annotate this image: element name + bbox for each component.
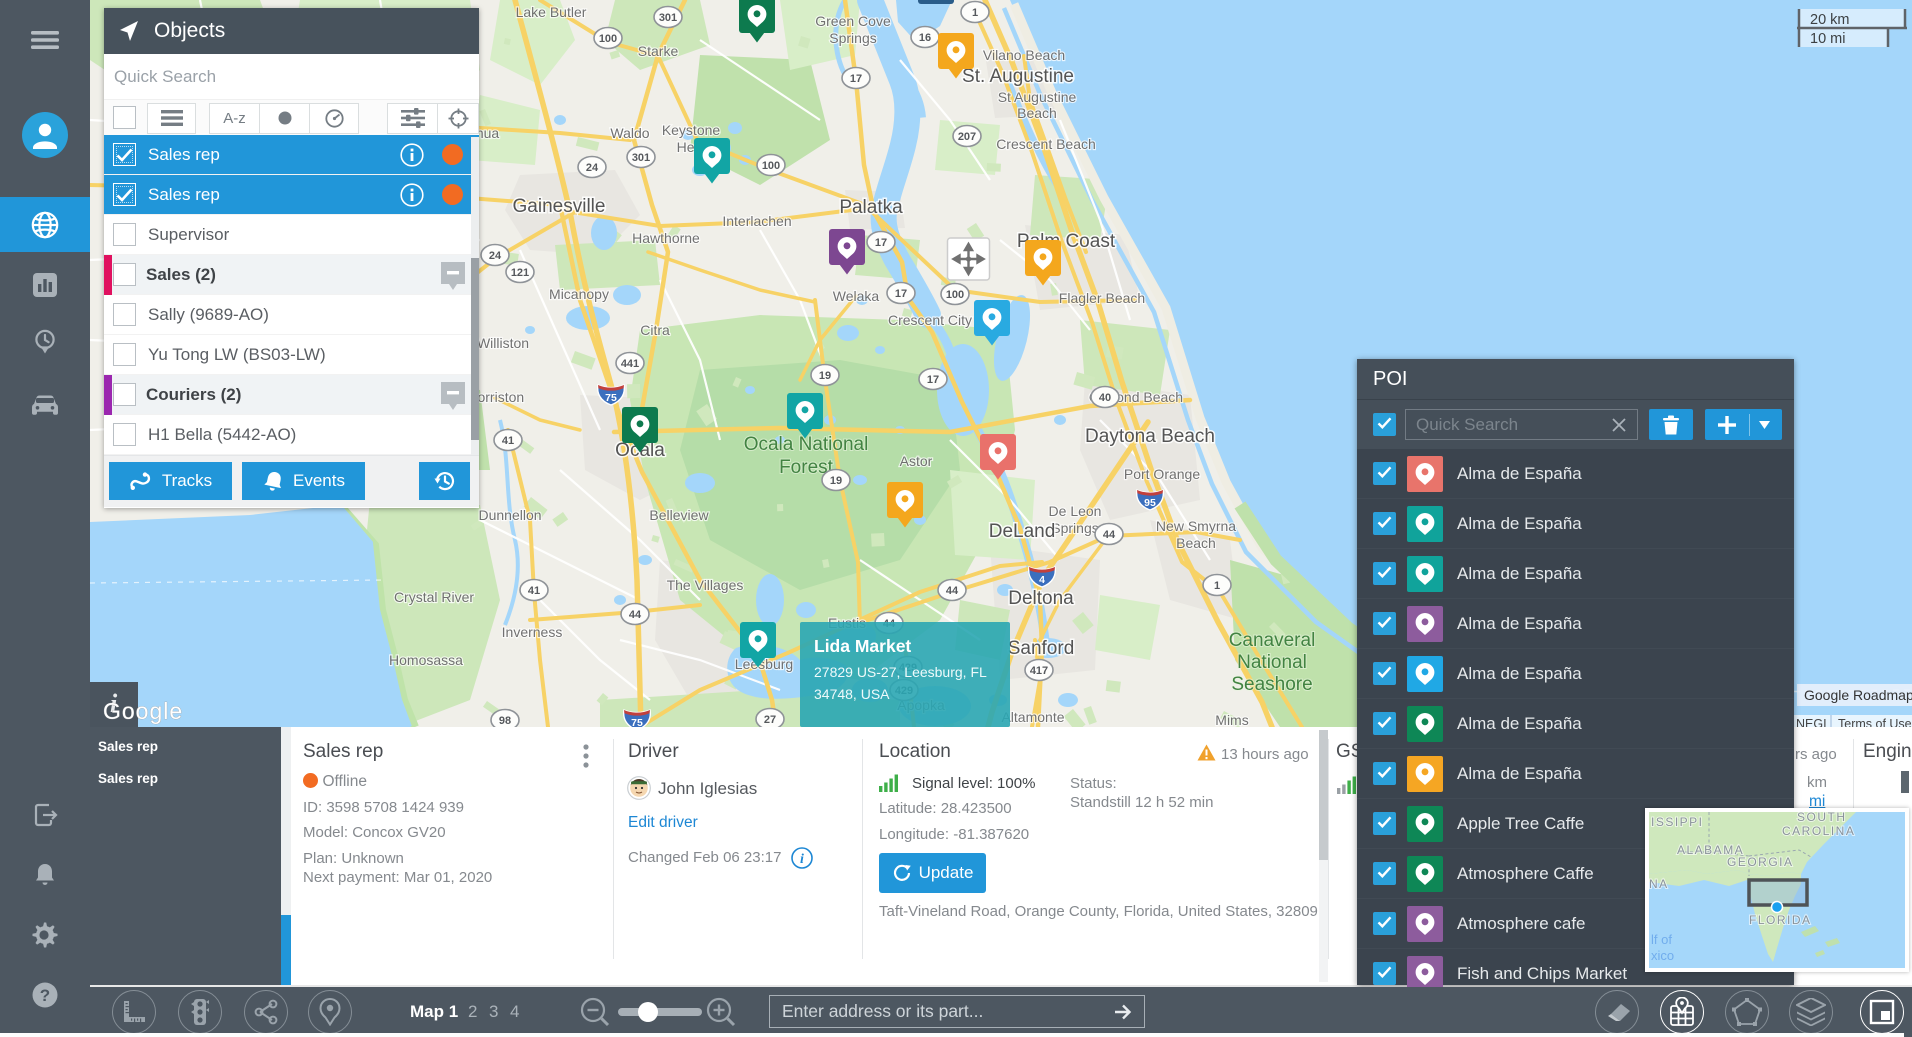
svg-text:Beach: Beach bbox=[1176, 535, 1216, 551]
svg-text:National: National bbox=[1237, 652, 1307, 673]
svg-text:NEGI: NEGI bbox=[1796, 717, 1827, 727]
svg-text:75: 75 bbox=[605, 392, 617, 404]
svg-text:Dunnellon: Dunnellon bbox=[478, 507, 541, 523]
svg-text:Deltona: Deltona bbox=[1008, 588, 1074, 609]
svg-text:DeLand: DeLand bbox=[989, 521, 1056, 542]
svg-text:24: 24 bbox=[586, 162, 599, 174]
svg-text:1: 1 bbox=[972, 7, 978, 19]
svg-text:100: 100 bbox=[599, 33, 617, 45]
svg-text:Crescent Beach: Crescent Beach bbox=[996, 136, 1096, 152]
svg-text:44: 44 bbox=[1103, 529, 1116, 541]
svg-text:Welaka: Welaka bbox=[833, 288, 880, 304]
svg-text:17: 17 bbox=[895, 288, 907, 300]
svg-text:Springs: Springs bbox=[1051, 520, 1098, 536]
svg-text:New Smyrna: New Smyrna bbox=[1156, 518, 1236, 534]
svg-text:27829 US-27, Leesburg, FL: 27829 US-27, Leesburg, FL bbox=[814, 664, 987, 680]
svg-text:Hawthorne: Hawthorne bbox=[632, 230, 700, 246]
svg-text:GEORGIA: GEORGIA bbox=[1727, 855, 1794, 869]
svg-text:Seashore: Seashore bbox=[1231, 674, 1312, 695]
svg-text:Crystal River: Crystal River bbox=[394, 589, 474, 605]
svg-text:10 mi: 10 mi bbox=[1810, 31, 1845, 47]
svg-text:1: 1 bbox=[1214, 580, 1220, 592]
svg-text:Canaveral: Canaveral bbox=[1229, 630, 1316, 651]
svg-text:Waldo: Waldo bbox=[610, 125, 649, 141]
svg-text:41: 41 bbox=[528, 585, 540, 597]
svg-text:40: 40 bbox=[1099, 392, 1111, 404]
svg-text:17: 17 bbox=[927, 374, 939, 386]
svg-text:24: 24 bbox=[489, 250, 502, 262]
svg-text:100: 100 bbox=[946, 289, 964, 301]
svg-text:34748, USA: 34748, USA bbox=[814, 686, 890, 702]
svg-text:Astor: Astor bbox=[900, 453, 933, 469]
svg-text:44: 44 bbox=[629, 609, 642, 621]
svg-text:4: 4 bbox=[1039, 574, 1045, 586]
svg-text:lf of: lf of bbox=[1651, 932, 1672, 947]
svg-text:i: i bbox=[800, 852, 804, 867]
svg-text:Gainesville: Gainesville bbox=[513, 196, 606, 217]
svg-text:417: 417 bbox=[1030, 665, 1048, 677]
svg-text:The Villages: The Villages bbox=[667, 577, 744, 593]
svg-text:St Augustine: St Augustine bbox=[998, 89, 1077, 105]
svg-text:17: 17 bbox=[850, 73, 862, 85]
svg-text:Lida Market: Lida Market bbox=[814, 636, 911, 656]
svg-text:121: 121 bbox=[511, 267, 529, 279]
svg-text:16: 16 bbox=[919, 32, 931, 44]
svg-text:Citra: Citra bbox=[640, 322, 670, 338]
svg-text:Google Roadmap: Google Roadmap bbox=[1804, 687, 1912, 703]
svg-text:?: ? bbox=[40, 986, 50, 1005]
svg-text:Beach: Beach bbox=[1017, 105, 1057, 121]
svg-text:Terms of Use: Terms of Use bbox=[1838, 717, 1912, 727]
svg-text:Keystone: Keystone bbox=[662, 122, 721, 138]
svg-text:Palatka: Palatka bbox=[839, 197, 903, 218]
svg-text:441: 441 bbox=[621, 358, 639, 370]
svg-text:Google: Google bbox=[103, 698, 183, 724]
svg-text:Micanopy: Micanopy bbox=[549, 286, 609, 302]
svg-text:NA: NA bbox=[1649, 877, 1669, 891]
svg-text:FLORIDA: FLORIDA bbox=[1749, 913, 1812, 927]
svg-text:Interlachen: Interlachen bbox=[722, 213, 791, 229]
svg-text:100: 100 bbox=[762, 160, 780, 172]
svg-text:Homosassa: Homosassa bbox=[389, 652, 463, 668]
svg-text:44: 44 bbox=[946, 585, 959, 597]
svg-text:Springs: Springs bbox=[829, 30, 876, 46]
svg-text:Williston: Williston bbox=[477, 335, 529, 351]
svg-text:Lake Butler: Lake Butler bbox=[516, 4, 587, 20]
svg-text:St. Augustine: St. Augustine bbox=[962, 66, 1074, 87]
svg-text:95: 95 bbox=[1144, 497, 1156, 509]
svg-text:Belleview: Belleview bbox=[649, 507, 709, 523]
svg-text:Green Cove: Green Cove bbox=[815, 13, 891, 29]
svg-text:301: 301 bbox=[632, 152, 650, 164]
svg-text:27: 27 bbox=[764, 714, 776, 726]
svg-text:Flagler Beach: Flagler Beach bbox=[1059, 290, 1145, 306]
svg-text:Starke: Starke bbox=[638, 43, 679, 59]
svg-text:98: 98 bbox=[499, 715, 511, 727]
svg-text:SOUTH: SOUTH bbox=[1797, 812, 1847, 824]
svg-text:41: 41 bbox=[502, 435, 514, 447]
svg-text:19: 19 bbox=[830, 475, 842, 487]
svg-text:Sanford: Sanford bbox=[1008, 638, 1075, 659]
svg-text:20 km: 20 km bbox=[1810, 12, 1850, 28]
svg-text:17: 17 bbox=[875, 237, 887, 249]
svg-text:Port Orange: Port Orange bbox=[1124, 466, 1200, 482]
svg-text:Vilano Beach: Vilano Beach bbox=[983, 47, 1065, 63]
svg-text:Daytona Beach: Daytona Beach bbox=[1085, 426, 1215, 447]
svg-text:ISSIPPI: ISSIPPI bbox=[1651, 815, 1704, 829]
svg-text:Crescent City: Crescent City bbox=[888, 312, 972, 328]
svg-text:CAROLINA: CAROLINA bbox=[1782, 824, 1855, 838]
svg-text:De Leon: De Leon bbox=[1049, 503, 1102, 519]
svg-text:75: 75 bbox=[631, 717, 643, 727]
svg-text:Altamonte: Altamonte bbox=[1001, 709, 1064, 725]
svg-text:xico: xico bbox=[1651, 948, 1674, 963]
svg-text:301: 301 bbox=[659, 12, 677, 24]
svg-text:Mims: Mims bbox=[1215, 712, 1248, 727]
svg-text:207: 207 bbox=[958, 131, 976, 143]
svg-text:Inverness: Inverness bbox=[502, 624, 563, 640]
svg-text:19: 19 bbox=[819, 370, 831, 382]
